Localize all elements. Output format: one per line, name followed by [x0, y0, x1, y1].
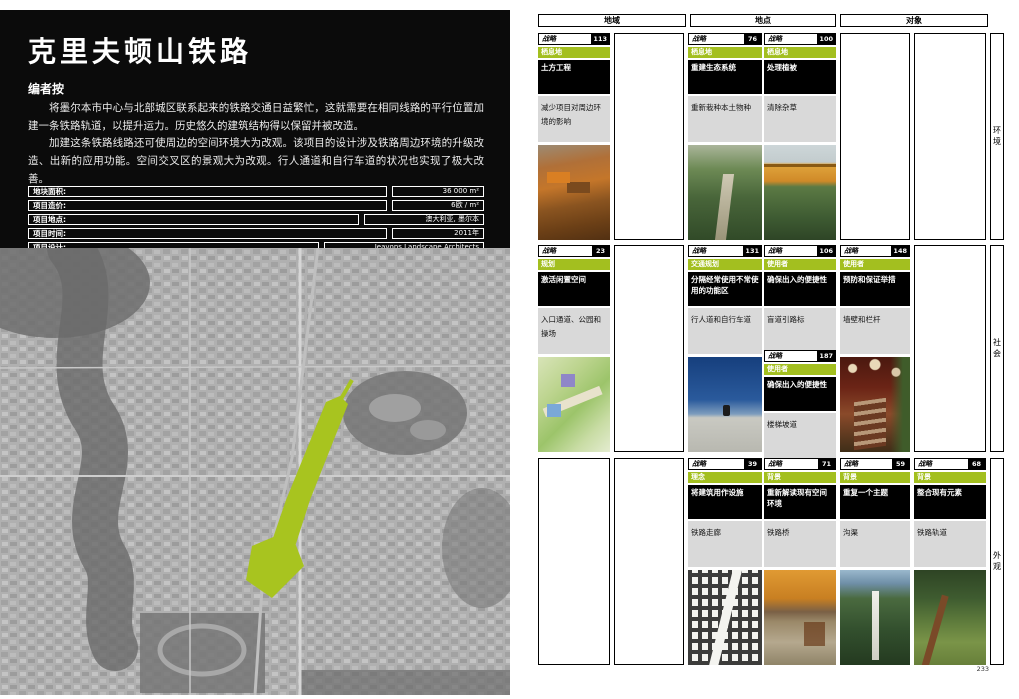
empty-cell	[840, 33, 910, 240]
strategy-label: 战略	[765, 246, 782, 256]
strategy-number: 68	[968, 459, 985, 469]
strategy-header: 战略 76	[688, 33, 762, 45]
card-desc: 铁路轨道	[914, 521, 986, 567]
strategy-label: 战略	[765, 351, 782, 361]
card-title: 分隔经常使用不常使用的功能区	[688, 272, 762, 306]
empty-cell	[614, 245, 684, 452]
strategy-label: 战略	[841, 246, 858, 256]
strategy-number: 59	[892, 459, 909, 469]
card-title: 将建筑用作设施	[688, 485, 762, 519]
strategy-label: 战略	[915, 459, 932, 469]
photo-overgrown-track	[914, 570, 986, 665]
strategy-card-100: 战略 100 栖息地 处理植被 清除杂草	[764, 33, 836, 240]
strategy-label: 战略	[539, 246, 556, 256]
strategy-label: 战略	[765, 34, 782, 44]
strategy-number: 187	[817, 351, 835, 361]
strategy-header: 战略 106	[764, 245, 836, 257]
strategy-number: 113	[591, 34, 609, 44]
project-title: 克里夫顿山铁路	[28, 30, 252, 70]
strategy-number: 23	[592, 246, 609, 256]
strategy-label: 战略	[841, 459, 858, 469]
strategy-card-131: 战略 131 交通规划 分隔经常使用不常使用的功能区 行人道和自行车道	[688, 245, 762, 452]
strategy-card-23: 战略 23 规划 激活闲置空间 入口通道、公园和操场	[538, 245, 610, 452]
card-desc: 清除杂草	[764, 96, 836, 142]
project-info-table: 地块面积: 36 000 m² 项目造价: 6欧 / m² 项目地点: 澳大利亚…	[28, 186, 484, 253]
strategy-header: 战略 71	[764, 458, 836, 470]
row-label-text: 社会	[992, 338, 1003, 360]
strategy-card-59: 战略 59 背景 重复一个主题 沟渠	[840, 458, 910, 665]
strategy-card-113: 战略 113 栖息地 土方工程 减少项目对周边环境的影响	[538, 33, 610, 240]
empty-cell	[914, 245, 986, 452]
photo-landscape-plan	[538, 357, 610, 452]
photo-railway-bridge	[764, 145, 836, 240]
editors-note-heading: 编者按	[28, 80, 64, 97]
column-header-place: 地点	[690, 14, 836, 27]
card-desc: 重新栽种本土物种	[688, 96, 762, 142]
row-label-site-area: 地块面积:	[28, 186, 387, 197]
card-title: 激活闲置空间	[538, 272, 610, 306]
strategy-header: 战略 100	[764, 33, 836, 45]
strategy-header: 战略 23	[538, 245, 610, 257]
strategy-card-39: 战略 39 理念 将建筑用作设施 铁路走廊	[688, 458, 762, 665]
strategy-label: 战略	[765, 459, 782, 469]
column-header-object: 对象	[840, 14, 988, 27]
strategy-header: 战略 68	[914, 458, 986, 470]
card-desc: 墙壁和栏杆	[840, 308, 910, 354]
card-title: 重建生态系统	[688, 60, 762, 94]
intro-text: 将墨尔本市中心与北部城区联系起来的铁路交通日益繁忙，这就需要在相同线路的平行位置…	[28, 100, 484, 188]
category-bar: 背景	[840, 472, 910, 483]
card-desc: 沟渠	[840, 521, 910, 567]
row-label-year: 项目时间:	[28, 228, 387, 239]
row-label-text: 环境	[992, 126, 1003, 148]
photo-rusty-stairs	[840, 357, 910, 452]
card-desc: 盲道引路标	[764, 308, 836, 354]
category-bar: 使用者	[840, 259, 910, 270]
category-bar: 理念	[688, 472, 762, 483]
empty-cell	[914, 33, 986, 240]
strategy-number: 76	[744, 34, 761, 44]
strategy-header: 战略 148	[840, 245, 910, 257]
card-title: 预防和保证举措	[840, 272, 910, 306]
card-title: 处理植被	[764, 60, 836, 94]
paragraph-1: 将墨尔本市中心与北部城区联系起来的铁路交通日益繁忙，这就需要在相同线路的平行位置…	[28, 100, 484, 135]
strategy-label: 战略	[689, 34, 706, 44]
row-value-year: 2011年	[392, 228, 484, 239]
row-label-environment: 环境	[990, 33, 1004, 240]
photo-bw-city-map	[688, 570, 762, 665]
category-bar: 栖息地	[688, 47, 762, 58]
table-row: 地块面积: 36 000 m²	[28, 186, 484, 197]
strategy-number: 100	[817, 34, 835, 44]
strategy-card-71: 战略 71 背景 重新解读现有空间环境 铁路桥	[764, 458, 836, 665]
category-bar: 使用者	[764, 364, 836, 375]
card-title: 重新解读现有空间环境	[764, 485, 836, 519]
strategy-card-187: 战略 187 使用者 确保出入的便捷性 楼梯坡道	[764, 350, 836, 459]
site-aerial-map	[0, 248, 510, 695]
strategy-number: 148	[891, 246, 909, 256]
row-label-appearance: 外观	[990, 458, 1004, 665]
card-title: 确保出入的便捷性	[764, 272, 836, 306]
strategy-number: 106	[817, 246, 835, 256]
left-page: 克里夫顿山铁路 编者按 将墨尔本市中心与北部城区联系起来的铁路交通日益繁忙，这就…	[0, 10, 510, 695]
strategy-card-106: 战略 106 使用者 确保出入的便捷性 盲道引路标	[764, 245, 836, 354]
row-label-society: 社会	[990, 245, 1004, 452]
page-number: 233	[955, 665, 989, 673]
category-bar: 背景	[764, 472, 836, 483]
right-page: 地域 地点 对象 战略 113 栖息地 土方工程 减少项目对周边环境的影响 战略…	[530, 0, 1019, 695]
photo-under-bridge	[764, 570, 836, 665]
strategy-header: 战略 59	[840, 458, 910, 470]
strategy-card-76: 战略 76 栖息地 重建生态系统 重新栽种本土物种	[688, 33, 762, 240]
table-row: 项目地点: 澳大利亚, 墨尔本	[28, 214, 484, 225]
photo-trees-sculpture	[840, 570, 910, 665]
row-value-cost: 6欧 / m²	[392, 200, 484, 211]
strategy-number: 71	[818, 459, 835, 469]
paragraph-2: 加建这条铁路线路还可使周边的空间环境大为改观。该项目的设计涉及铁路周边环境的升级…	[28, 135, 484, 188]
row-label-location: 项目地点:	[28, 214, 359, 225]
empty-cell	[538, 458, 610, 665]
card-desc: 入口通道、公园和操场	[538, 308, 610, 354]
category-bar: 使用者	[764, 259, 836, 270]
category-bar: 背景	[914, 472, 986, 483]
strategy-number: 39	[744, 459, 761, 469]
card-desc: 行人道和自行车道	[688, 308, 762, 354]
strategy-header: 战略 39	[688, 458, 762, 470]
photo-earthworks	[538, 145, 610, 240]
strategy-label: 战略	[689, 246, 706, 256]
strategy-label: 战略	[689, 459, 706, 469]
category-bar: 栖息地	[538, 47, 610, 58]
category-bar: 交通规划	[688, 259, 762, 270]
empty-cell	[614, 458, 684, 665]
row-value-site-area: 36 000 m²	[392, 186, 484, 197]
card-title: 土方工程	[538, 60, 610, 94]
category-bar: 规划	[538, 259, 610, 270]
card-desc: 楼梯坡道	[764, 413, 836, 459]
card-title: 整合现有元素	[914, 485, 986, 519]
strategy-card-148: 战略 148 使用者 预防和保证举措 墙壁和栏杆	[840, 245, 910, 452]
strategy-header: 战略 187	[764, 350, 836, 362]
strategy-header: 战略 131	[688, 245, 762, 257]
card-title: 确保出入的便捷性	[764, 377, 836, 411]
strategy-header: 战略 113	[538, 33, 610, 45]
card-desc: 减少项目对周边环境的影响	[538, 96, 610, 142]
column-header-region: 地域	[538, 14, 686, 27]
table-row: 项目时间: 2011年	[28, 228, 484, 239]
strategy-card-68: 战略 68 背景 整合现有元素 铁路轨道	[914, 458, 986, 665]
empty-cell	[614, 33, 684, 240]
row-label-text: 外观	[992, 551, 1003, 573]
card-desc: 铁路走廊	[688, 521, 762, 567]
strategy-label: 战略	[539, 34, 556, 44]
aerial-map-graphic	[0, 248, 510, 695]
table-row: 项目造价: 6欧 / m²	[28, 200, 484, 211]
strategy-number: 131	[743, 246, 761, 256]
photo-skateboarder	[688, 357, 762, 452]
category-bar: 栖息地	[764, 47, 836, 58]
card-desc: 铁路桥	[764, 521, 836, 567]
card-title: 重复一个主题	[840, 485, 910, 519]
photo-green-boardwalk	[688, 145, 762, 240]
row-label-cost: 项目造价:	[28, 200, 387, 211]
row-value-location: 澳大利亚, 墨尔本	[364, 214, 484, 225]
